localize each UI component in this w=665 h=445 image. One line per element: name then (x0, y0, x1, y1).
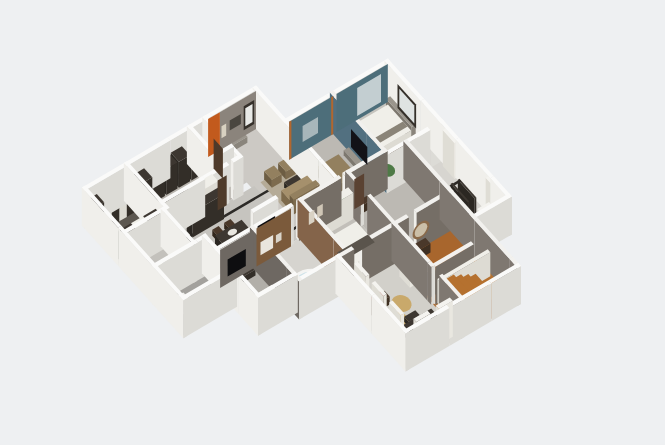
door-dark (354, 174, 364, 210)
wall-piano-east-a (428, 261, 435, 305)
door-dark (218, 175, 227, 210)
accent-trim-orange (331, 96, 333, 135)
wall-hall-b (231, 154, 244, 201)
floorplan-3d-viewport[interactable] (0, 0, 665, 445)
floorplan-3d-render (0, 0, 665, 445)
accent-trim-orange (289, 121, 291, 160)
